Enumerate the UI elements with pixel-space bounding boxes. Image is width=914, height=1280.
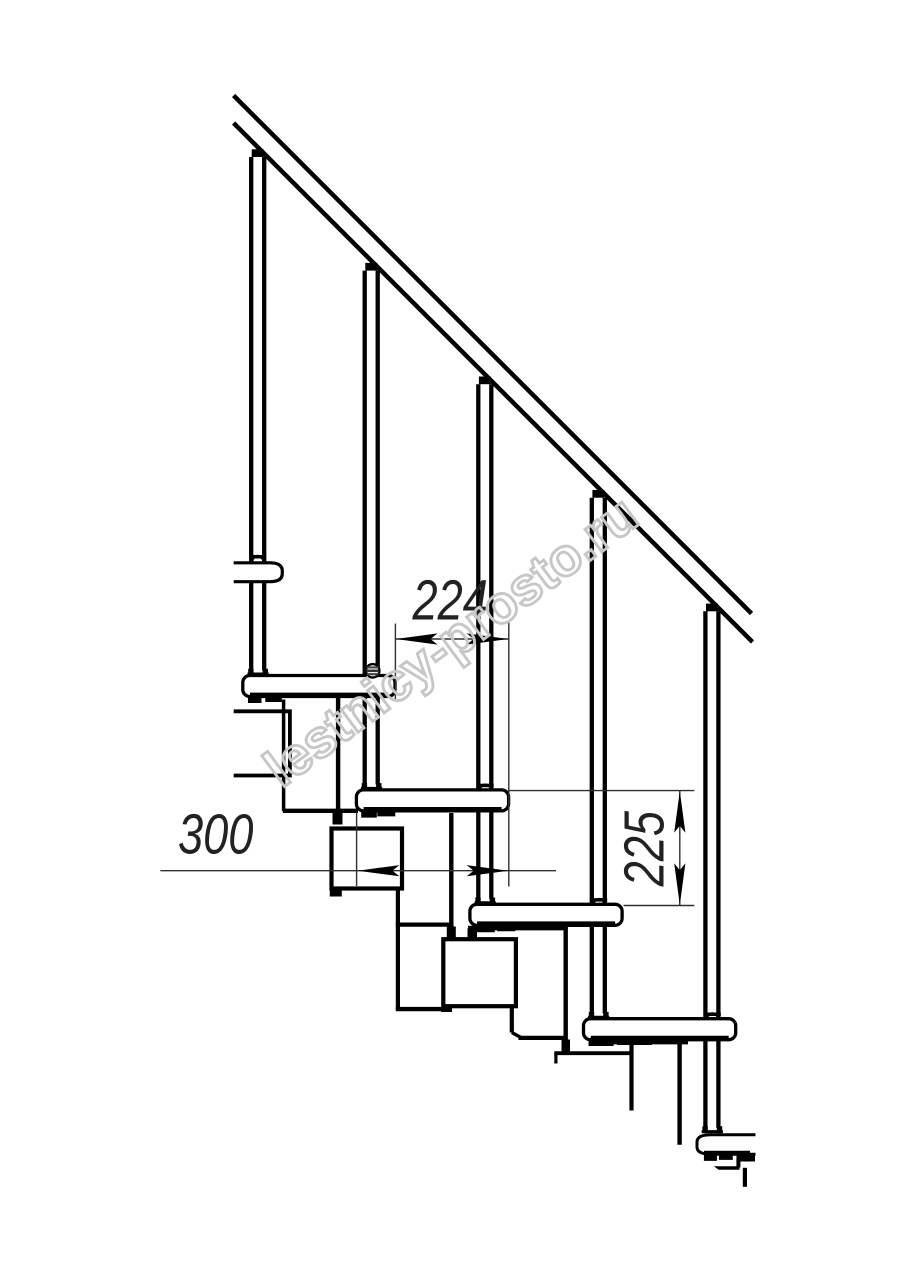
svg-text:225: 225 — [613, 811, 676, 888]
svg-text:300: 300 — [178, 803, 254, 866]
